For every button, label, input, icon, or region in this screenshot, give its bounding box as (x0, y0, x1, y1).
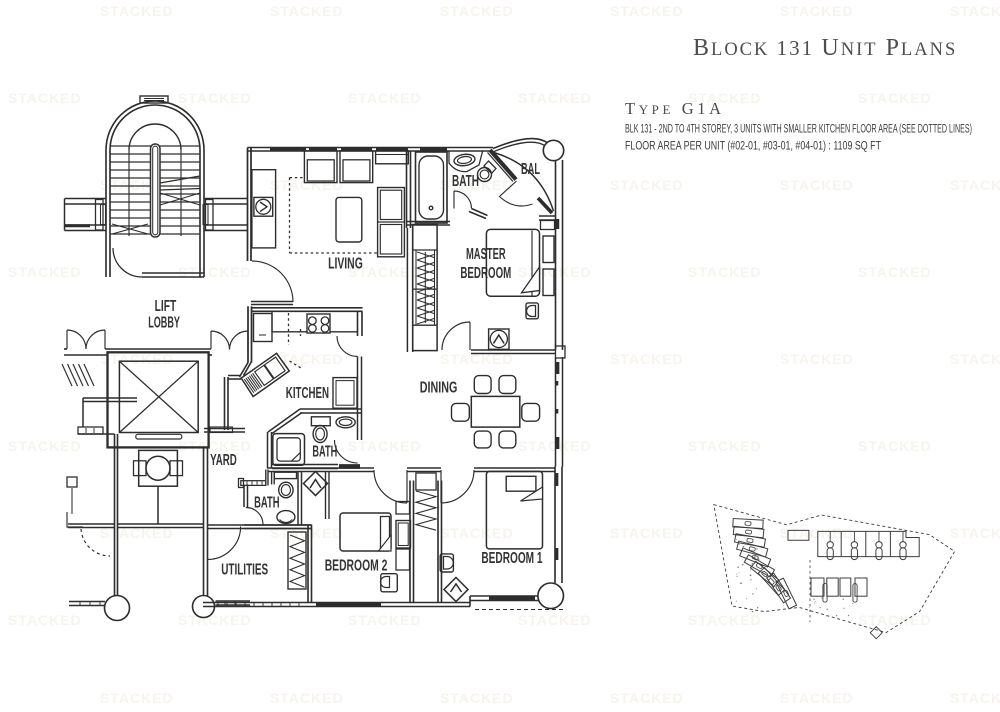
svg-text:LIFT: LIFT (155, 298, 177, 315)
svg-text:FLOOR AREA PER UNIT (#02-01, #: FLOOR AREA PER UNIT (#02-01, #03-01, #04… (625, 141, 881, 153)
svg-text:STACKED: STACKED (178, 612, 252, 628)
svg-text:KITCHEN: KITCHEN (286, 385, 329, 402)
svg-text:STACKED: STACKED (950, 177, 1000, 193)
svg-text:STACKED: STACKED (270, 690, 344, 706)
svg-text:STACKED: STACKED (610, 525, 684, 541)
svg-text:STACKED: STACKED (610, 690, 684, 706)
svg-text:STACKED: STACKED (780, 3, 854, 19)
svg-text:DINING: DINING (420, 380, 458, 397)
svg-text:STACKED: STACKED (8, 90, 82, 106)
svg-text:STACKED: STACKED (100, 3, 174, 19)
svg-text:BATH: BATH (312, 443, 337, 460)
svg-text:YARD: YARD (210, 452, 237, 469)
svg-text:TYPE G1A: TYPE G1A (625, 99, 725, 118)
svg-text:STACKED: STACKED (178, 90, 252, 106)
svg-text:STACKED: STACKED (100, 177, 174, 193)
svg-text:LIVING: LIVING (328, 256, 363, 273)
svg-text:STACKED: STACKED (950, 351, 1000, 367)
svg-text:BEDROOM 2: BEDROOM 2 (325, 557, 388, 574)
svg-text:STACKED: STACKED (348, 90, 422, 106)
svg-text:STACKED: STACKED (440, 525, 514, 541)
svg-text:STACKED: STACKED (688, 438, 762, 454)
svg-text:UTILITIES: UTILITIES (221, 562, 268, 579)
svg-text:STACKED: STACKED (348, 612, 422, 628)
svg-text:STACKED: STACKED (440, 690, 514, 706)
svg-text:BAL: BAL (521, 161, 540, 178)
svg-text:STACKED: STACKED (688, 612, 762, 628)
svg-text:STACKED: STACKED (348, 438, 422, 454)
svg-text:STACKED: STACKED (780, 690, 854, 706)
svg-text:STACKED: STACKED (518, 90, 592, 106)
svg-text:STACKED: STACKED (8, 438, 82, 454)
svg-text:STACKED: STACKED (518, 612, 592, 628)
svg-text:STACKED: STACKED (688, 264, 762, 280)
svg-text:BLK 131 - 2ND TO 4TH STOREY, 3: BLK 131 - 2ND TO 4TH STOREY, 3 UNITS WIT… (625, 124, 972, 136)
svg-text:STACKED: STACKED (610, 3, 684, 19)
svg-text:BEDROOM 1: BEDROOM 1 (481, 550, 542, 567)
svg-text:STACKED: STACKED (780, 351, 854, 367)
svg-text:STACKED: STACKED (858, 612, 932, 628)
svg-text:STACKED: STACKED (610, 351, 684, 367)
svg-text:STACKED: STACKED (100, 690, 174, 706)
svg-text:STACKED: STACKED (610, 177, 684, 193)
svg-text:STACKED: STACKED (858, 438, 932, 454)
svg-text:STACKED: STACKED (780, 177, 854, 193)
svg-text:STACKED: STACKED (950, 690, 1000, 706)
svg-text:BATH: BATH (254, 495, 279, 512)
svg-text:STACKED: STACKED (270, 3, 344, 19)
svg-text:STACKED: STACKED (8, 264, 82, 280)
svg-text:STACKED: STACKED (858, 90, 932, 106)
svg-text:STACKED: STACKED (8, 612, 82, 628)
svg-text:STACKED: STACKED (270, 525, 344, 541)
svg-text:STACKED: STACKED (858, 264, 932, 280)
svg-text:STACKED: STACKED (950, 3, 1000, 19)
svg-text:STACKED: STACKED (440, 3, 514, 19)
svg-text:LOBBY: LOBBY (148, 315, 180, 332)
svg-text:STACKED: STACKED (780, 525, 854, 541)
svg-text:STACKED: STACKED (950, 525, 1000, 541)
svg-text:BATH: BATH (452, 173, 479, 190)
